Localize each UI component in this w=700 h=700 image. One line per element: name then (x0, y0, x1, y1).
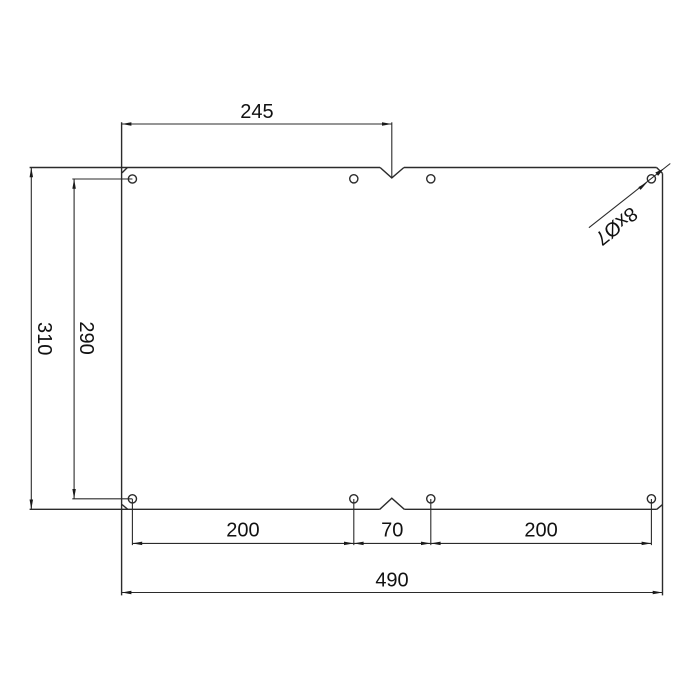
svg-text:245: 245 (240, 101, 273, 123)
svg-text:200: 200 (226, 520, 259, 542)
svg-text:8xØ7: 8xØ7 (590, 202, 641, 249)
svg-text:70: 70 (381, 520, 403, 542)
svg-text:490: 490 (375, 570, 408, 592)
svg-text:200: 200 (524, 520, 557, 542)
svg-text:290: 290 (75, 321, 97, 354)
svg-text:310: 310 (33, 322, 55, 355)
